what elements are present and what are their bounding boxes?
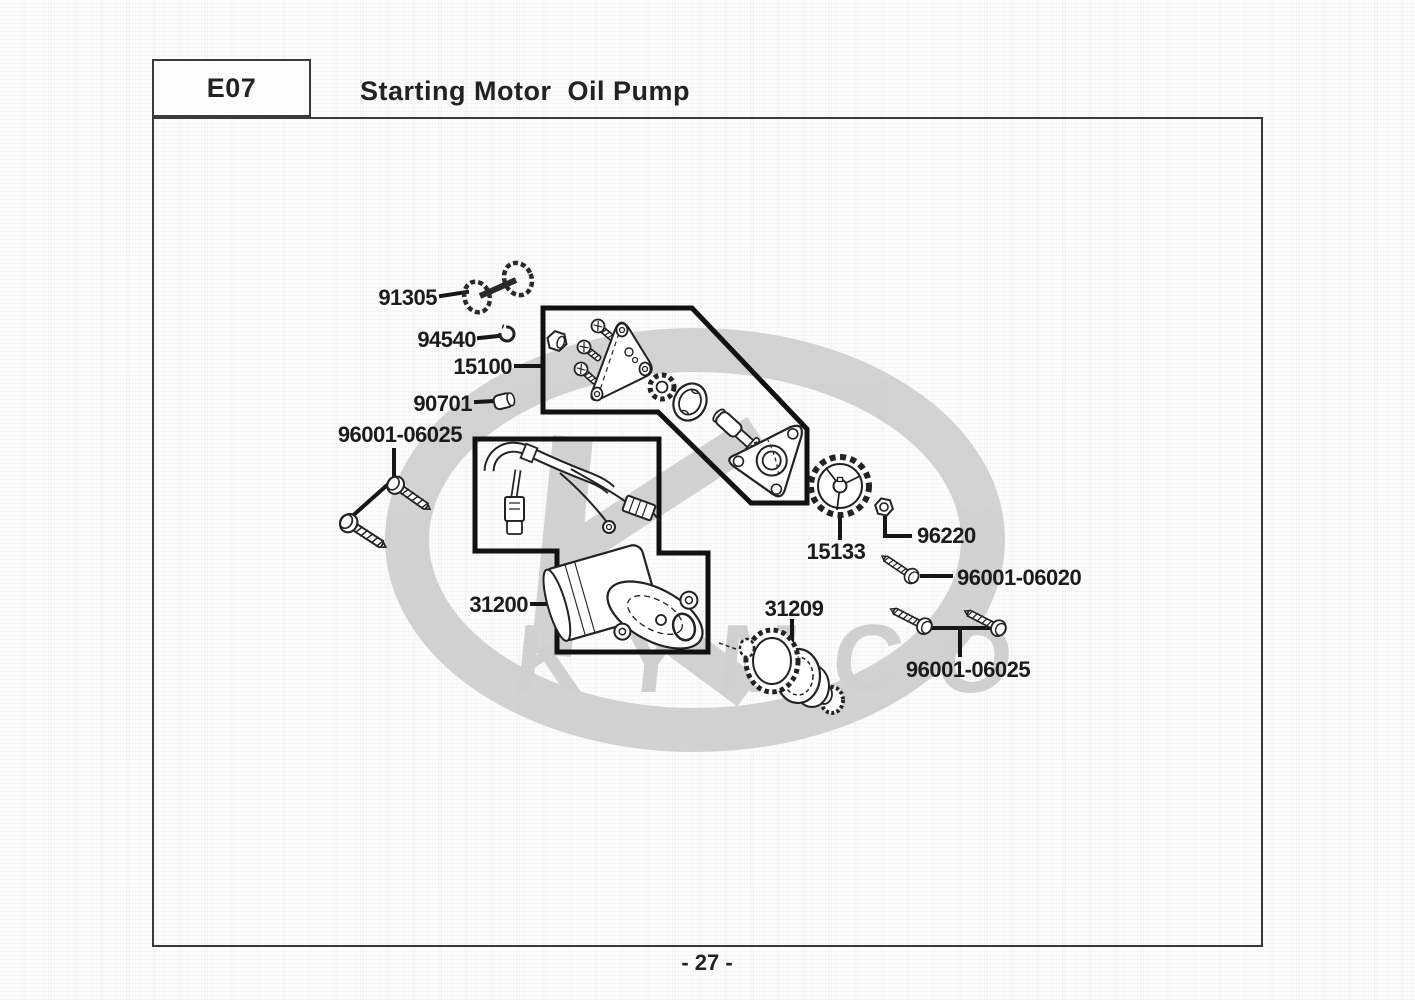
nut-drawing	[874, 497, 895, 516]
part-label-31209: 31209	[734, 596, 854, 622]
part-label-91305: 91305	[317, 285, 437, 311]
part-label-90701: 90701	[352, 391, 472, 417]
leader-90701	[476, 401, 495, 402]
leader-96220	[885, 518, 910, 536]
part-label-96001-06025-right: 96001-06025	[868, 657, 1068, 683]
catalog-page: { "header": { "code": "E07", "title": "S…	[0, 0, 1415, 1000]
clip-drawing	[496, 322, 516, 343]
part-label-96001-06020: 96001-06020	[957, 565, 1081, 591]
leader-94540	[479, 336, 499, 338]
part-label-96001-06025-left: 96001-06025	[282, 422, 462, 448]
sprocket-drawing	[811, 457, 869, 515]
part-label-15133: 15133	[776, 539, 896, 565]
diagram-canvas: KYMCO	[0, 0, 1415, 1000]
part-label-96220: 96220	[917, 523, 976, 549]
part-label-94540: 94540	[356, 327, 476, 353]
oring-seals-drawing	[460, 259, 536, 316]
part-label-31200: 31200	[408, 592, 528, 618]
part-label-15100: 15100	[392, 354, 512, 380]
